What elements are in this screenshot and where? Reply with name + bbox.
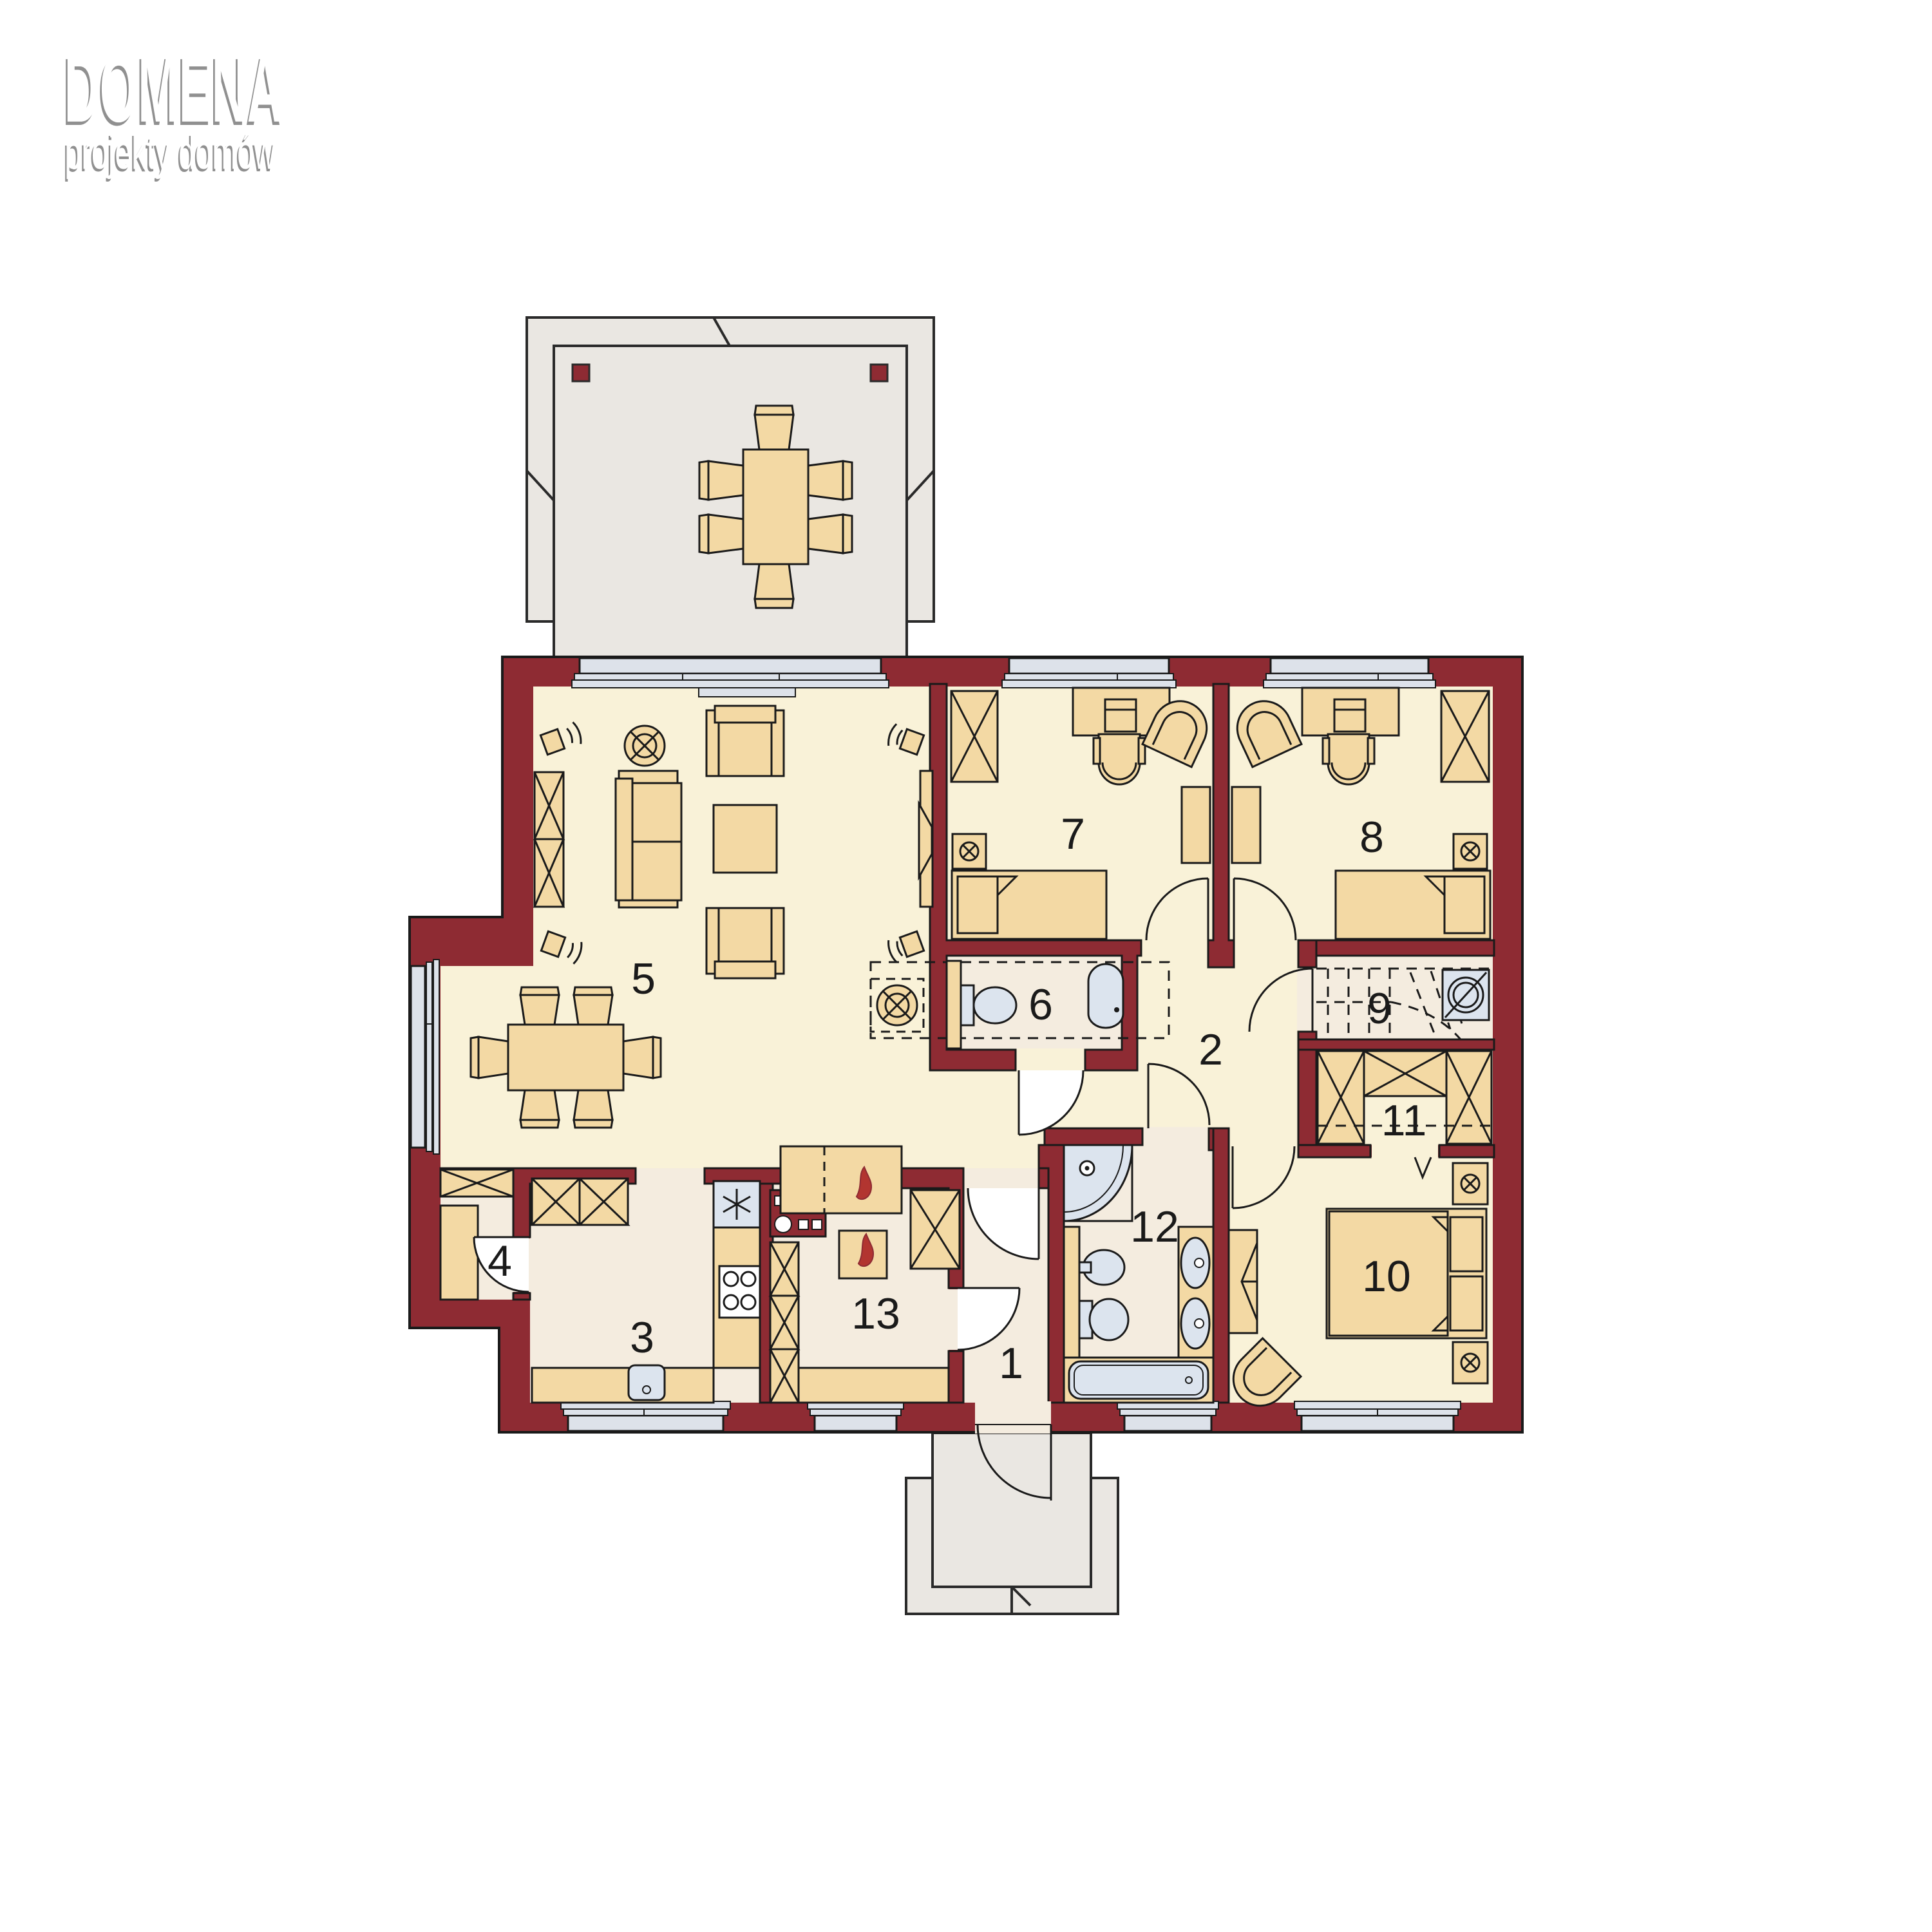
svg-text:7: 7 [1061,810,1085,858]
svg-text:12: 12 [1130,1202,1179,1251]
svg-text:3: 3 [630,1313,654,1362]
svg-text:projekty domów: projekty domów [64,126,276,180]
svg-text:9: 9 [1367,984,1392,1033]
svg-text:2: 2 [1198,1025,1223,1074]
svg-text:5: 5 [631,954,656,1003]
svg-text:11: 11 [1381,1096,1427,1145]
svg-text:4: 4 [488,1236,512,1285]
svg-text:8: 8 [1359,813,1384,862]
svg-text:13: 13 [851,1289,900,1338]
svg-text:10: 10 [1362,1252,1411,1301]
svg-text:1: 1 [999,1339,1023,1388]
svg-text:6: 6 [1028,980,1053,1029]
